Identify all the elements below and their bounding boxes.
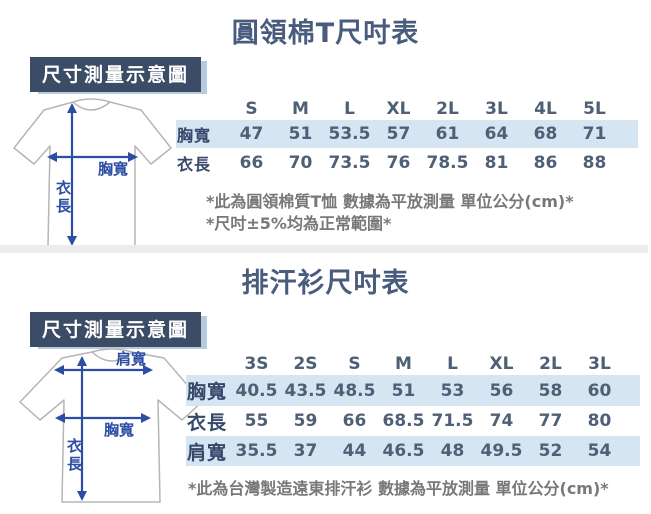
size-table-cotton-tee: S M L XL 2L 3L 4L 5L 胸寬 47 51 53.5 57 61…: [176, 98, 638, 177]
table-row-chest-width: 胸寬 40.5 43.5 48.5 51 53 56 58 60: [186, 375, 640, 406]
size-header: XL: [477, 354, 526, 374]
garment-length-label: 衣長: [55, 180, 70, 216]
value-cell: 53: [428, 381, 477, 401]
size-header: 3L: [472, 99, 521, 119]
value-cell: 68: [521, 124, 570, 144]
page-title-cotton-tee: 圓領棉T尺吋表: [0, 11, 651, 50]
table-row-garment-length: 衣長 55 59 66 68.5 71.5 74 77 80: [186, 406, 640, 436]
size-header: 2S: [281, 354, 330, 374]
value-cell: 52: [526, 441, 575, 461]
value-cell: 58: [526, 381, 575, 401]
table-header-row: S M L XL 2L 3L 4L 5L: [176, 98, 638, 120]
value-cell: 47: [227, 124, 276, 144]
shoulder-width-label: 肩寬: [116, 352, 146, 367]
size-header: M: [276, 99, 325, 119]
section-divider: [0, 245, 648, 253]
value-cell: 70: [276, 153, 325, 173]
value-cell: 77: [526, 411, 575, 431]
value-cell: 43.5: [281, 381, 330, 401]
size-header: 5L: [570, 99, 619, 119]
value-cell: 51: [379, 381, 428, 401]
value-cell: 74: [477, 411, 526, 431]
row-label-cell: 肩寬: [186, 438, 232, 465]
tshirt-outline: [14, 99, 171, 246]
size-chart-page: 圓領棉T尺吋表 尺寸測量示意圖 胸寬 衣長 S M L XL: [0, 0, 651, 514]
value-cell: 71.5: [428, 411, 477, 431]
value-cell: 48.5: [330, 381, 379, 401]
table-row-chest-width: 胸寬 47 51 53.5 57 61 64 68 71: [176, 120, 638, 148]
size-header: 3S: [232, 354, 281, 374]
table-row-garment-length: 衣長 66 70 73.5 76 78.5 81 86 88: [176, 148, 638, 177]
value-cell: 76: [374, 153, 423, 173]
size-table-wicking-shirt: 3S 2S S M L XL 2L 3L 胸寬 40.5 43.5 48.5 5…: [186, 352, 640, 466]
value-cell: 60: [575, 381, 624, 401]
value-cell: 46.5: [379, 441, 428, 461]
size-header: 2L: [423, 99, 472, 119]
size-header: M: [379, 354, 428, 374]
note-line: *此為圓領棉質T恤 數據為平放測量 單位公分(cm)*: [206, 191, 574, 213]
size-header: L: [325, 99, 374, 119]
value-cell: 73.5: [325, 153, 374, 173]
value-cell: 48: [428, 441, 477, 461]
value-cell: 35.5: [232, 441, 281, 461]
value-cell: 55: [232, 411, 281, 431]
shirt-measurement-diagram-1: 胸寬 衣長: [10, 96, 185, 254]
value-cell: 51: [276, 124, 325, 144]
page-title-wicking-shirt: 排汗衫尺吋表: [0, 261, 651, 300]
value-cell: 40.5: [232, 381, 281, 401]
value-cell: 59: [281, 411, 330, 431]
measure-diagram-label-1: 尺寸測量示意圖: [30, 57, 201, 92]
size-header: S: [330, 354, 379, 374]
value-cell: 66: [227, 153, 276, 173]
value-cell: 64: [472, 124, 521, 144]
table-header-row: 3S 2S S M L XL 2L 3L: [186, 352, 640, 375]
size-header: 4L: [521, 99, 570, 119]
value-cell: 57: [374, 124, 423, 144]
value-cell: 37: [281, 441, 330, 461]
size-header: 2L: [526, 354, 575, 374]
value-cell: 81: [472, 153, 521, 173]
value-cell: 71: [570, 124, 619, 144]
garment-length-label: 衣長: [66, 438, 81, 474]
note-line: *尺吋±5%均為正常範圍*: [206, 213, 574, 235]
value-cell: 88: [570, 153, 619, 173]
row-label-cell: 衣長: [176, 151, 227, 175]
value-cell: 44: [330, 441, 379, 461]
value-cell: 78.5: [423, 153, 472, 173]
size-header: XL: [374, 99, 423, 119]
value-cell: 66: [330, 411, 379, 431]
row-label-cell: 胸寬: [176, 122, 227, 146]
value-cell: 68.5: [379, 411, 428, 431]
value-cell: 56: [477, 381, 526, 401]
value-cell: 61: [423, 124, 472, 144]
value-cell: 54: [575, 441, 624, 461]
chest-width-label: 胸寬: [104, 423, 134, 438]
measure-diagram-label-2: 尺寸測量示意圖: [30, 312, 201, 347]
value-cell: 86: [521, 153, 570, 173]
table-row-shoulder-width: 肩寬 35.5 37 44 46.5 48 49.5 52 54: [186, 436, 640, 466]
row-label-cell: 衣長: [186, 408, 232, 435]
size-header: L: [428, 354, 477, 374]
row-label-cell: 胸寬: [186, 377, 232, 404]
size-header: 3L: [575, 354, 624, 374]
value-cell: 80: [575, 411, 624, 431]
size-header: S: [227, 99, 276, 119]
value-cell: 53.5: [325, 124, 374, 144]
note-line: *此為台灣製造遠東排汗衫 數據為平放測量 單位公分(cm)*: [188, 478, 609, 500]
measurement-notes-2: *此為台灣製造遠東排汗衫 數據為平放測量 單位公分(cm)*: [188, 478, 609, 500]
chest-width-label: 胸寬: [98, 162, 128, 177]
value-cell: 49.5: [477, 441, 526, 461]
measurement-notes-1: *此為圓領棉質T恤 數據為平放測量 單位公分(cm)* *尺吋±5%均為正常範圍…: [206, 191, 574, 235]
